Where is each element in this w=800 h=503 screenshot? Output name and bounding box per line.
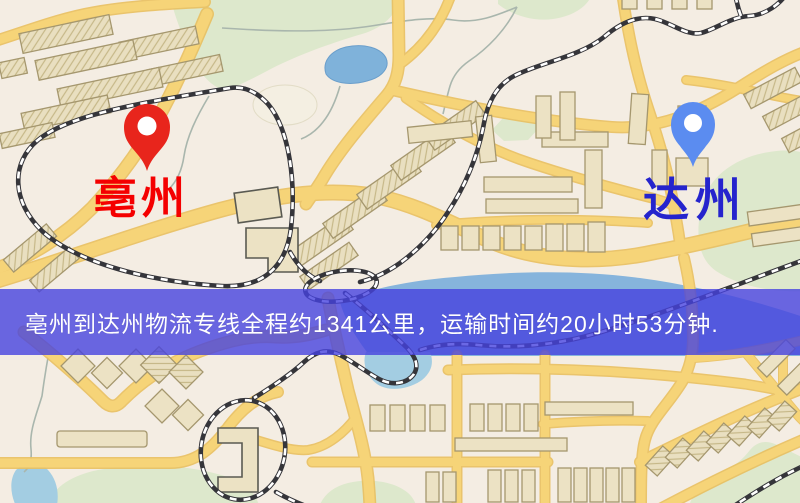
origin-label: 亳州 bbox=[93, 174, 189, 223]
map-screenshot: 亳州 达州 亳州到达州物流专线全程约1341公里，运输时间约20小时53分钟. bbox=[0, 0, 800, 503]
route-info-text: 亳州到达州物流专线全程约1341公里，运输时间约20小时53分钟. bbox=[0, 305, 719, 339]
destination-label: 达州 bbox=[643, 175, 747, 226]
route-info-banner: 亳州到达州物流专线全程约1341公里，运输时间约20小时53分钟. bbox=[0, 289, 800, 355]
map-canvas[interactable]: 亳州 达州 bbox=[0, 0, 800, 503]
